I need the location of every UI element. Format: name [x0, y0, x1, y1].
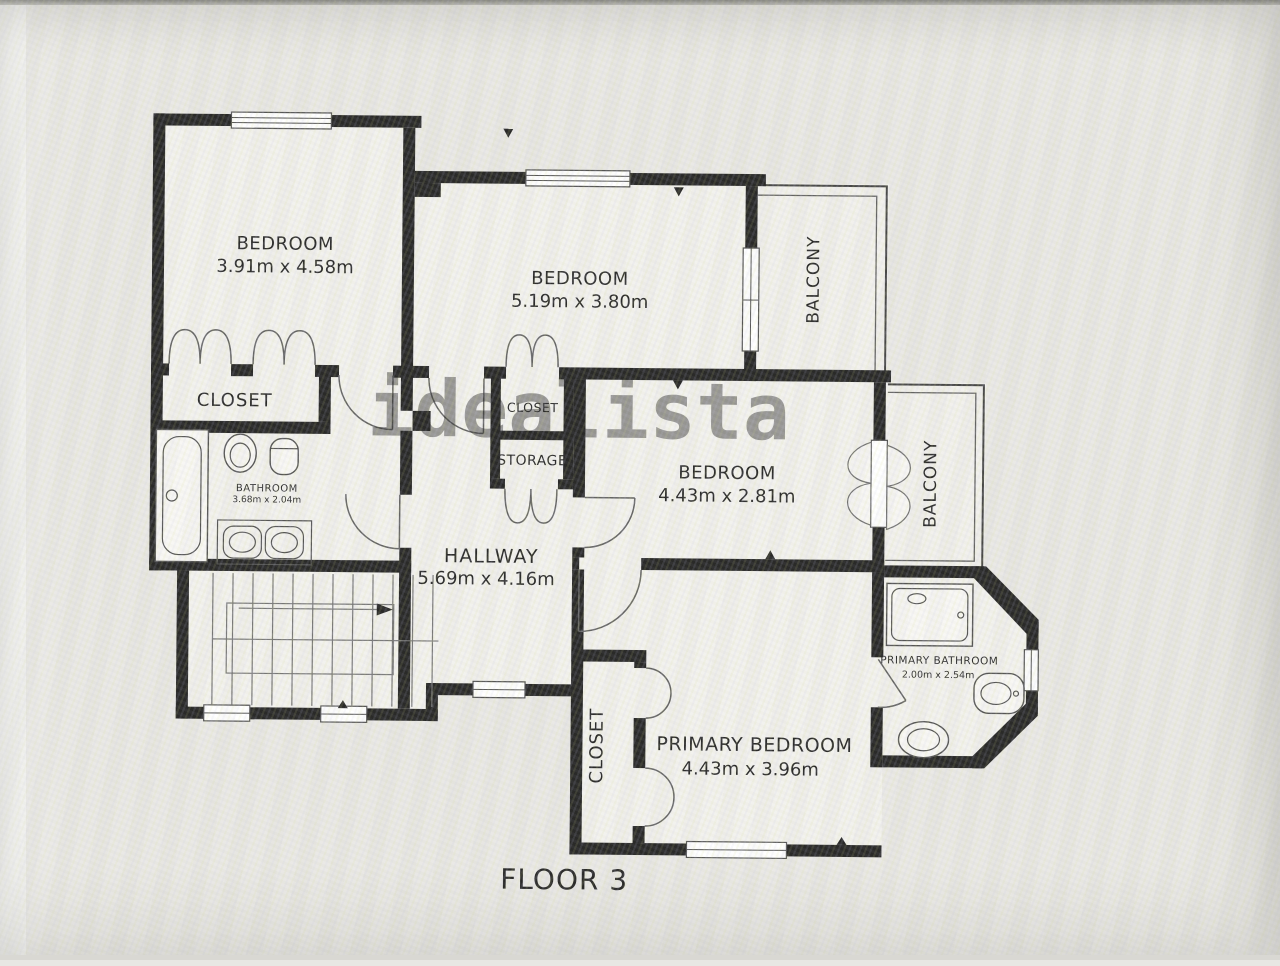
primary-bedroom-dims: 4.43m x 3.96m — [681, 758, 819, 780]
floor-plan-svg: BEDROOM 3.91m x 4.58m BEDROOM 5.19m x 3.… — [0, 0, 1280, 966]
bedroom3-dims: 4.43m x 2.81m — [658, 485, 796, 507]
hallway-label: HALLWAY — [444, 545, 539, 568]
toilet-primary — [898, 721, 948, 757]
window-bedroom1 — [231, 112, 331, 129]
bathroom-dims: 3.68m x 2.04m — [232, 495, 301, 506]
closet-primary-label: CLOSET — [586, 708, 608, 784]
bathroom-label: BATHROOM — [236, 483, 298, 495]
window-bedroom3 — [871, 440, 888, 527]
hallway-dims: 5.69m x 4.16m — [417, 568, 555, 590]
floor-plan: BEDROOM 3.91m x 4.58m BEDROOM 5.19m x 3.… — [0, 0, 1280, 966]
floor-label: FLOOR 3 — [500, 863, 628, 897]
bedroom1-dims: 3.91m x 4.58m — [216, 256, 354, 278]
photo-edge-bottom — [0, 955, 1280, 960]
closet1-label: CLOSET — [197, 390, 273, 412]
bedroom1-label: BEDROOM — [236, 233, 334, 255]
primary-bathroom-dims: 2.00m x 2.54m — [902, 670, 975, 682]
primary-bedroom-label: PRIMARY BEDROOM — [656, 733, 852, 757]
primary-bathroom-label: PRIMARY BATHROOM — [880, 654, 998, 667]
window-bedroom2 — [526, 170, 630, 187]
balcony-top-label: BALCONY — [804, 236, 825, 324]
idealista-watermark: idealista — [367, 364, 790, 458]
bidet — [270, 438, 298, 474]
bedroom2-dims: 5.19m x 3.80m — [511, 291, 649, 313]
bedroom3-label: BEDROOM — [678, 462, 776, 484]
bedroom2-label: BEDROOM — [531, 268, 629, 290]
floorplan-photo: BEDROOM 3.91m x 4.58m BEDROOM 5.19m x 3.… — [0, 0, 1280, 960]
shower — [886, 583, 973, 646]
balcony-right-label: BALCONY — [921, 440, 942, 528]
